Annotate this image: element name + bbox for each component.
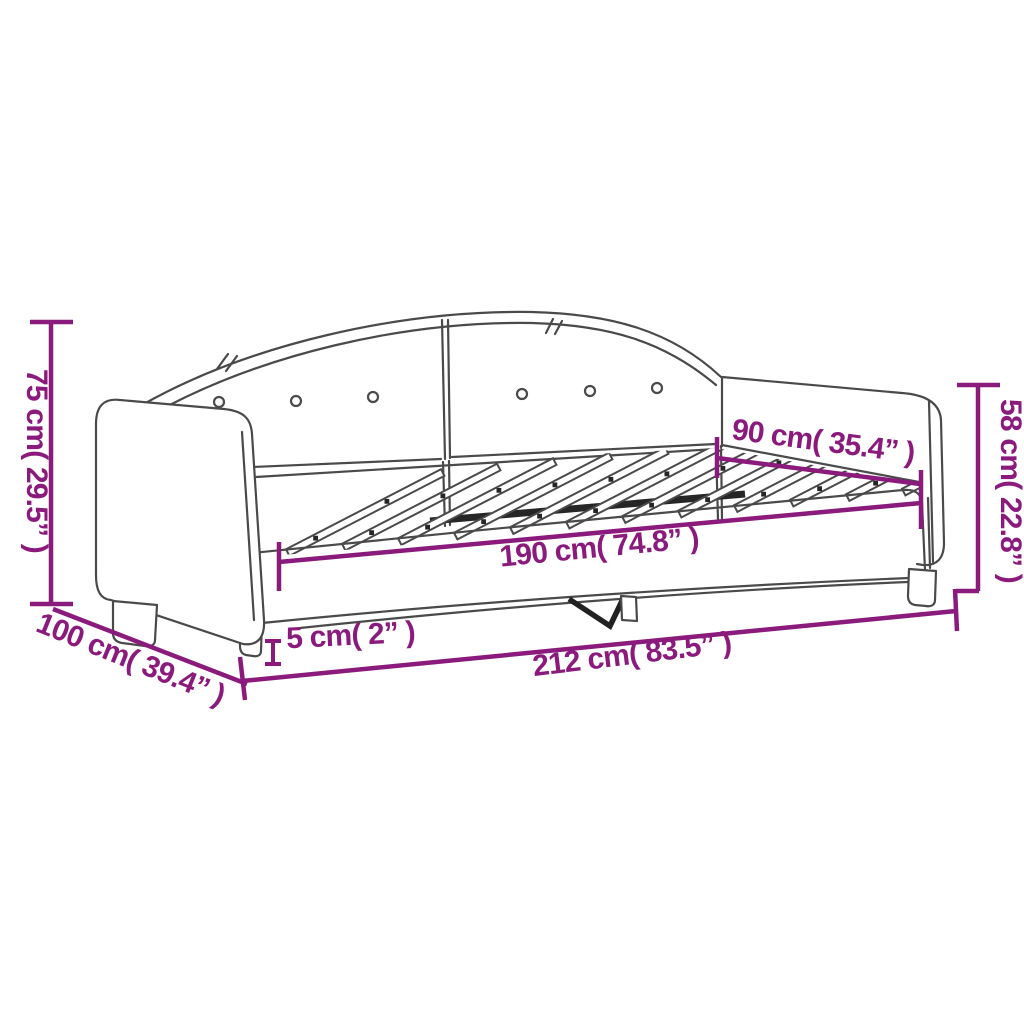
product-dimension-diagram: 75 cm( 29.5” ) 100 cm( 39.4” ) 212 cm( 8… [0, 0, 1024, 1024]
right-armrest-top-edge [722, 377, 941, 420]
leg-height-dimension: 5 cm( 2” ) [265, 616, 416, 664]
slat-screw-dot [649, 503, 654, 508]
slat-screw-dot [313, 536, 318, 541]
daybed-dimension-drawing: 75 cm( 29.5” ) 100 cm( 39.4” ) 212 cm( 8… [0, 0, 1024, 1024]
leg-height-lines [265, 641, 281, 664]
centre-leg-v-bracket [569, 599, 622, 626]
overall-height-dimension: 75 cm( 29.5” ) [20, 322, 73, 604]
slat-screw-dot [817, 486, 822, 491]
armrest-height-dimension: 58 cm( 22.8” ) [957, 385, 1024, 591]
slat-screw-dot [873, 481, 878, 486]
sleeping-length-label: 190 cm( 74.8” ) [498, 522, 700, 574]
button [585, 386, 595, 396]
slat-screw-dot [497, 488, 502, 493]
backrest-arch [142, 312, 721, 415]
slat-screw-dot [385, 499, 390, 504]
sleeping-length-dimension: 190 cm( 74.8” ) [279, 503, 921, 591]
left-armrest [96, 400, 264, 647]
arch-inner-curve [151, 323, 716, 415]
button [517, 389, 527, 399]
slat-screw-dot [945, 444, 950, 449]
backrest-seam [442, 320, 450, 459]
backrest-left-panel-bottom [253, 459, 441, 467]
centre-leg-plate [621, 596, 637, 621]
slat-screw-dot [481, 519, 486, 524]
button [214, 397, 224, 407]
slat-screw-dot [441, 493, 446, 498]
slat-screw-dot [369, 530, 374, 535]
slat-screw-dot [721, 466, 726, 471]
button [652, 383, 662, 393]
rail-corner-inner-line [928, 498, 930, 568]
overall-length-label: 212 cm( 83.5” ) [531, 626, 733, 683]
daybed-drawing [96, 312, 1024, 656]
slat-screw-dot [593, 508, 598, 513]
tufting-buttons [214, 383, 662, 407]
button [291, 396, 301, 406]
leg-height-label: 5 cm( 2” ) [285, 616, 415, 656]
slat-screw-dot [537, 514, 542, 519]
arch-outer-curve [142, 312, 721, 405]
slat-screw-dot [665, 471, 670, 476]
armrest-height-label: 58 cm( 22.8” ) [994, 399, 1024, 583]
button [368, 392, 378, 402]
slat-screw-dot [705, 497, 710, 502]
slat-screw-dot [761, 492, 766, 497]
slat-screw-dot [609, 477, 614, 482]
armrest-height-lines [957, 385, 1000, 591]
slat-screw-dot [553, 482, 558, 487]
overall-height-label: 75 cm( 29.5” ) [20, 369, 53, 553]
right-armrest-leg [908, 569, 936, 606]
slat-screw-dot [425, 525, 430, 530]
